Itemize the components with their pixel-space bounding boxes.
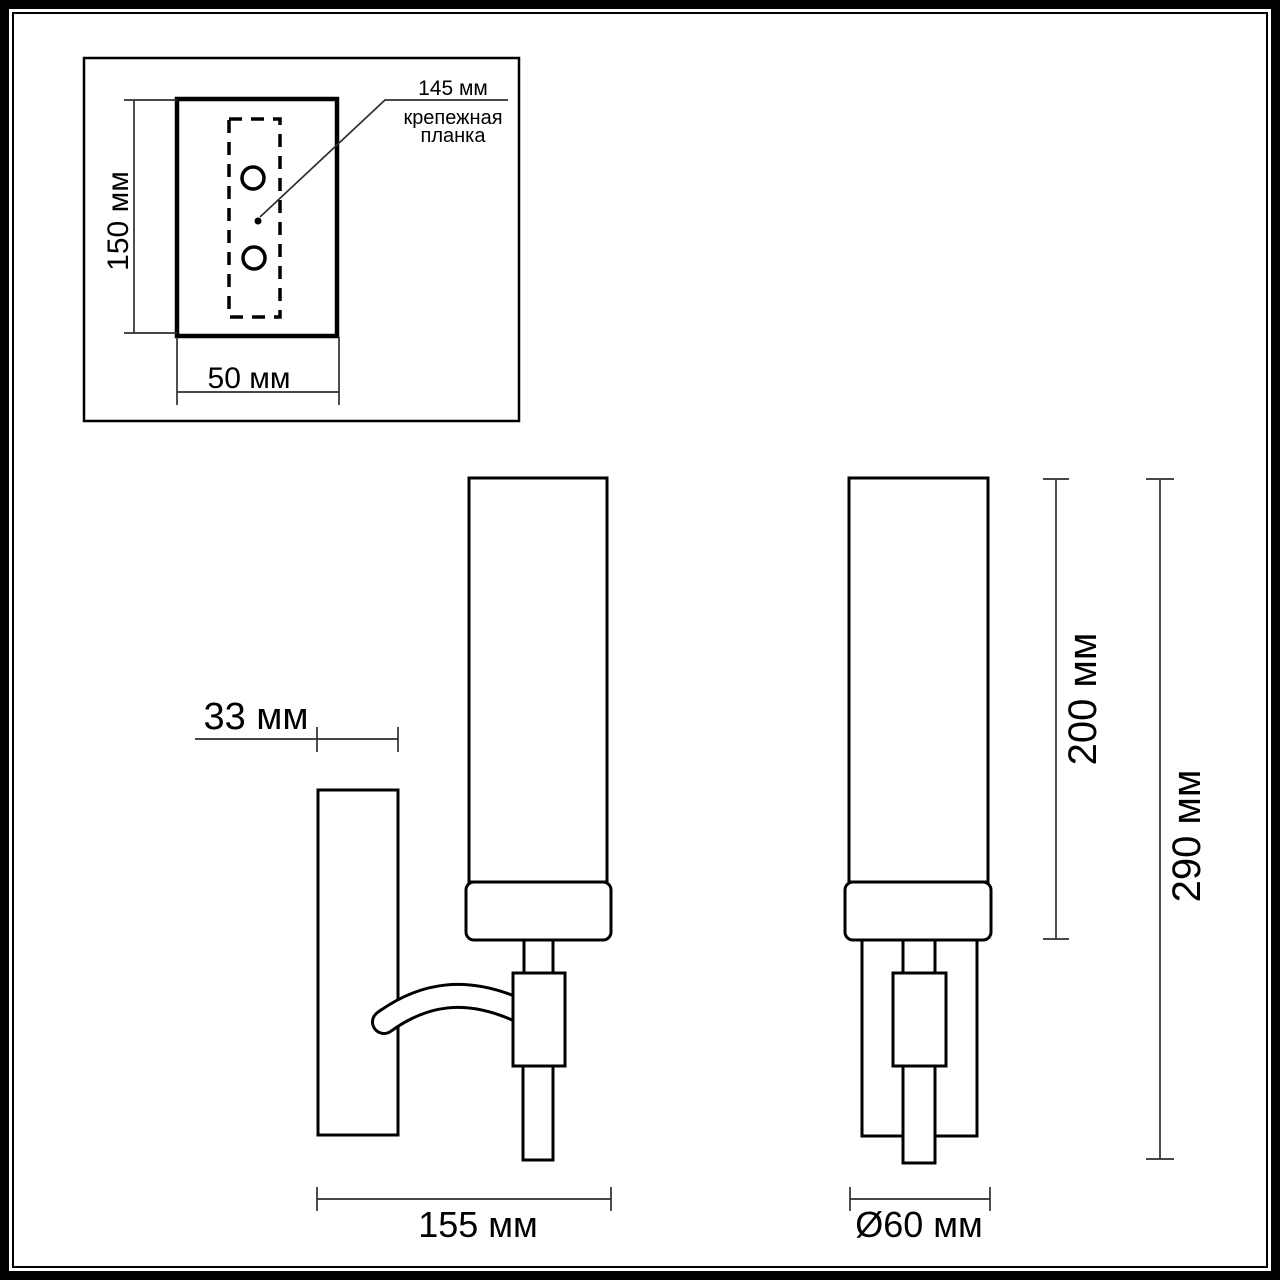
shade-height-label: 200 мм <box>1061 633 1105 766</box>
wall-plate-side <box>318 790 398 1135</box>
socket-side <box>513 973 565 1066</box>
backplate-outline <box>177 99 337 336</box>
shade-holder-side <box>466 882 611 940</box>
glass-shade-front <box>849 478 988 882</box>
technical-drawing-page: 145 мм крепежная планка 150 мм 50 мм <box>0 0 1280 1280</box>
bracket-length-label: 145 мм <box>418 77 488 100</box>
inset-height-label: 150 мм <box>102 171 135 271</box>
bracket-caption-line-2: планка <box>421 125 487 147</box>
upper-stem-front <box>903 940 935 974</box>
screw-hole-bottom <box>243 247 265 269</box>
side-width-label: 155 мм <box>418 1204 538 1245</box>
lower-stem-side <box>523 1066 553 1160</box>
inset-width-label: 50 мм <box>208 362 291 395</box>
diameter-label: Ø60 мм <box>855 1204 983 1245</box>
socket-front <box>893 973 946 1066</box>
screw-hole-top <box>242 167 264 189</box>
depth-label: 33 мм <box>203 696 308 738</box>
shade-holder-front <box>845 882 991 940</box>
upper-stem-side <box>524 940 553 974</box>
technical-drawing: 145 мм крепежная планка 150 мм 50 мм <box>0 0 1280 1280</box>
lower-stem-front <box>903 1066 935 1163</box>
overall-height-label: 290 мм <box>1165 770 1209 903</box>
glass-shade-side <box>469 478 607 882</box>
leader-dot <box>255 218 262 225</box>
